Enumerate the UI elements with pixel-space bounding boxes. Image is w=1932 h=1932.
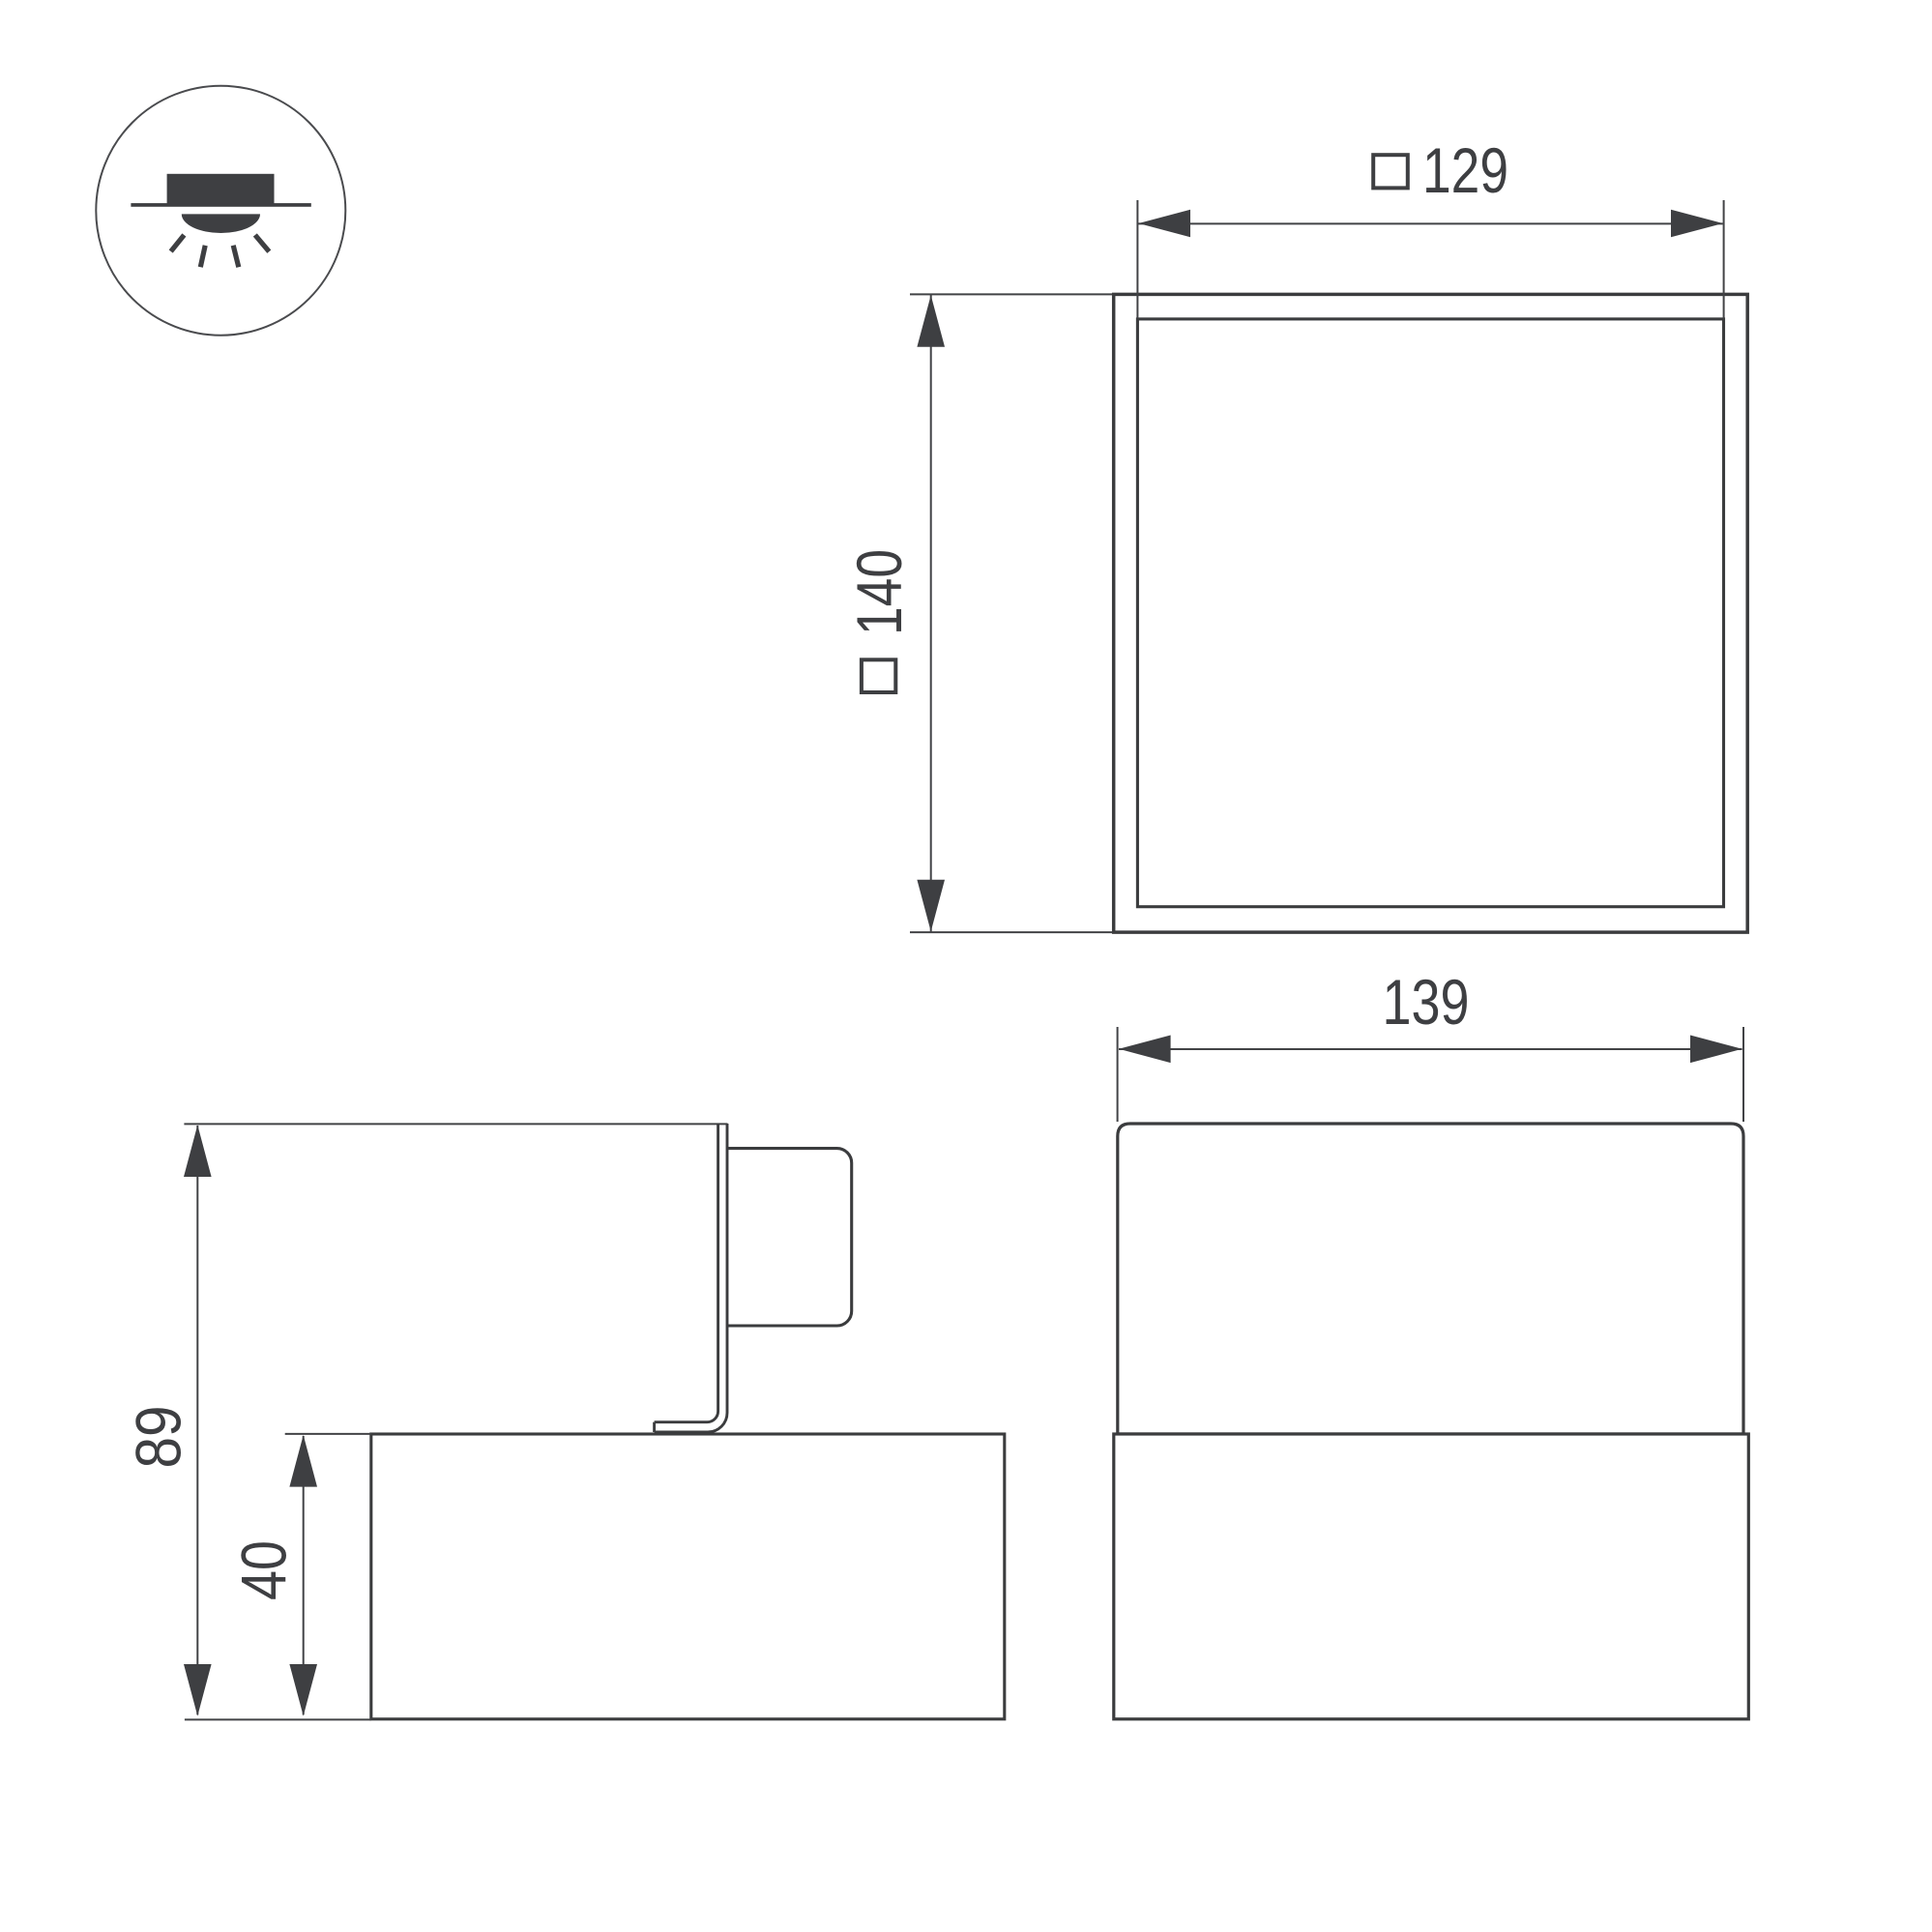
svg-text:40: 40 [228, 1540, 300, 1600]
svg-text:89: 89 [122, 1406, 193, 1469]
svg-text:139: 139 [1383, 966, 1470, 1038]
svg-text:129: 129 [1422, 134, 1508, 206]
svg-text:140: 140 [843, 549, 915, 635]
